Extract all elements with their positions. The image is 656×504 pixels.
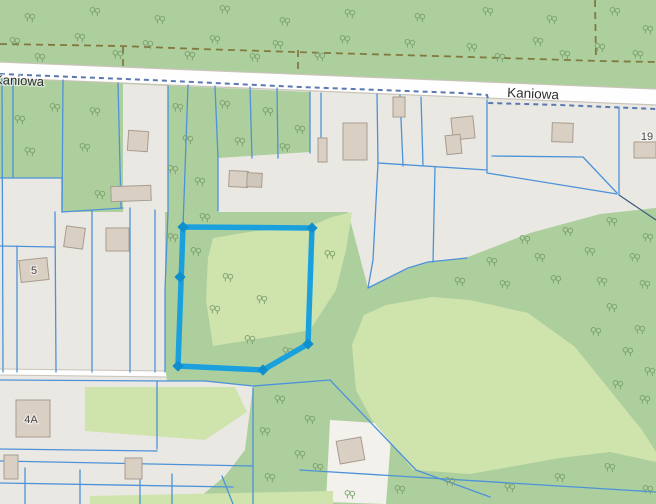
map-viewport[interactable]: Kaniowa Kaniowa 5 4A 19 [0,0,656,504]
building [552,123,574,143]
building [343,123,367,160]
building [318,138,327,162]
building [125,458,142,479]
building [229,171,249,188]
map-layers [0,0,656,504]
parcel-label-19: 19 [641,131,653,143]
building [393,97,405,117]
road-label-kaniowa-right: Kaniowa [507,85,560,102]
building [247,173,263,188]
building [336,437,365,464]
building [64,226,86,249]
building [106,228,129,251]
building [634,142,656,158]
building [4,455,18,479]
building [111,185,151,201]
building [127,130,148,151]
parcel-label-4a: 4A [24,414,38,426]
light-parcel-south [326,420,392,504]
parcel-label-5: 5 [31,265,37,277]
building [445,134,462,154]
map-canvas[interactable]: Kaniowa Kaniowa 5 4A 19 [0,0,656,504]
road-label-kaniowa-left: Kaniowa [0,72,45,89]
service-road-surface [0,372,166,374]
